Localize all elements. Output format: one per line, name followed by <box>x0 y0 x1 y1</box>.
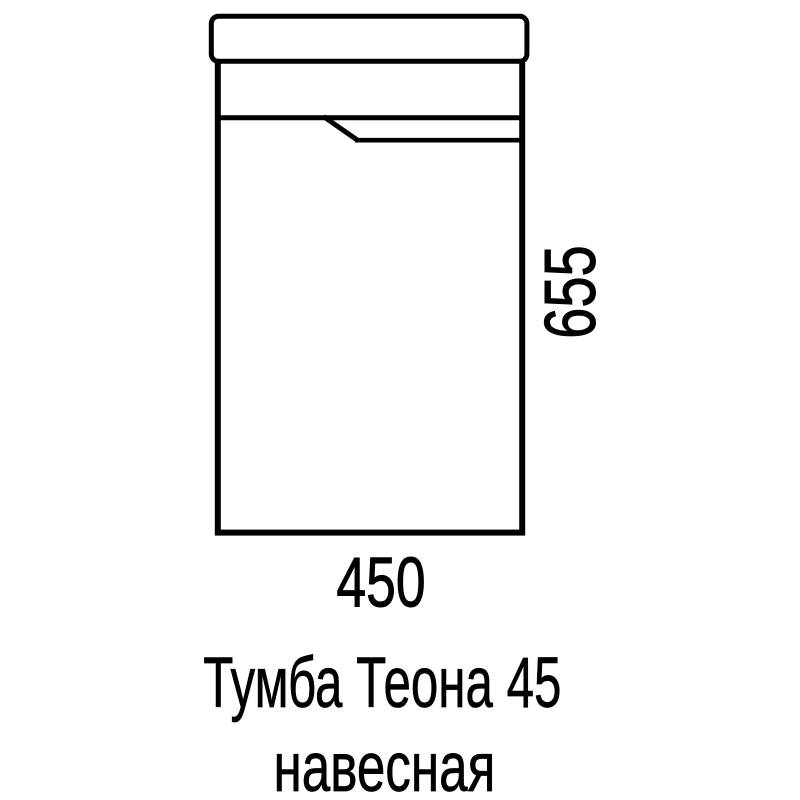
svg-text:Тумба Теона 45: Тумба Теона 45 <box>203 643 561 722</box>
svg-text:655: 655 <box>529 245 611 338</box>
svg-text:450: 450 <box>336 543 425 622</box>
svg-text:навесная: навесная <box>274 727 496 800</box>
